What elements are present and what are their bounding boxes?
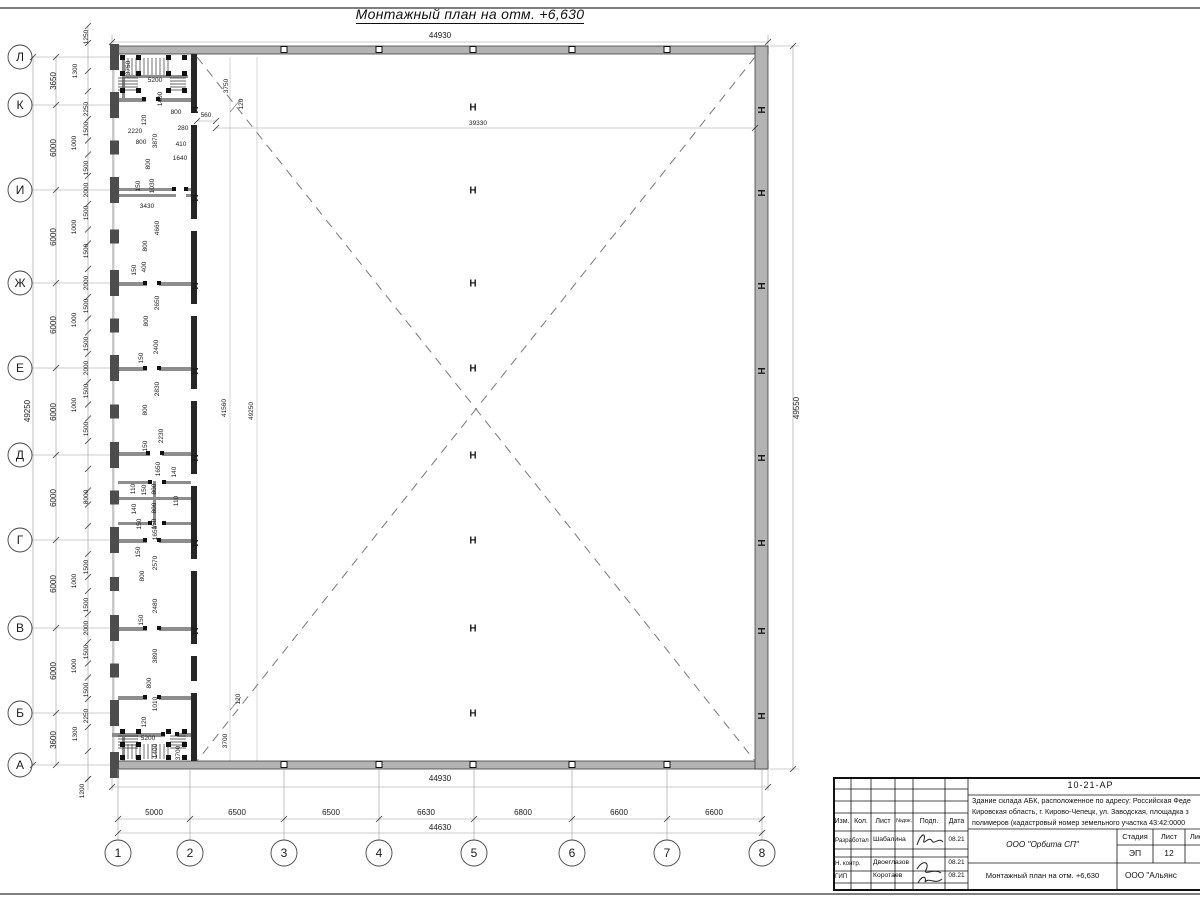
door-jamb-square (146, 451, 150, 455)
dim-label: 1300 (72, 726, 79, 741)
row-axis-label: Б (16, 706, 24, 720)
door-jamb-square (143, 695, 147, 699)
dim-label: 6600 (705, 808, 723, 817)
stair-column-square (120, 755, 125, 760)
row-axis-label: Д (16, 448, 24, 462)
row-date-gip: 08.21 (945, 873, 968, 880)
stair-column-square (182, 729, 187, 734)
col-axis-label: 5 (471, 846, 478, 860)
dim-label: 49250 (23, 399, 32, 422)
row-axis-label: Ж (14, 276, 25, 290)
steel-column-symbol: H (188, 539, 199, 546)
dim-label: 6000 (49, 228, 58, 246)
stair-column-square (136, 88, 141, 93)
steel-column-symbol: H (755, 712, 766, 719)
stair-column-square (182, 742, 187, 747)
stair-column-square (120, 742, 125, 747)
col-header-ndoc: №док. (895, 819, 913, 825)
roof-bracing (197, 57, 755, 761)
dim-label: 140 (171, 466, 178, 477)
dim-label: 120 (141, 716, 148, 727)
dim-label: 1000 (71, 658, 78, 673)
steel-column-symbol: H (755, 627, 766, 634)
wall-column-square (470, 47, 476, 53)
dim-label: 1000 (71, 312, 78, 327)
dim-label: 150 (138, 352, 145, 363)
door-jamb-square (143, 626, 147, 630)
row-axis-label: А (16, 758, 24, 772)
steel-column-symbol: H (755, 454, 766, 461)
dim-label: 1500 (83, 559, 90, 574)
dim-label: 1200 (79, 783, 86, 798)
dim-label: 110 (130, 483, 137, 494)
steel-column-symbol: H (469, 103, 476, 114)
dim-label: 800 (151, 502, 158, 513)
sheets-value: 1 (1185, 849, 1200, 858)
building-walls (112, 46, 768, 769)
wall-column-square (376, 762, 382, 768)
steel-column-symbol: H (755, 189, 766, 196)
dim-label: 3750 (223, 78, 230, 93)
dim-label: 3750 (125, 60, 132, 75)
dim-label: 5200 (141, 735, 156, 742)
stair-column-square (182, 755, 187, 760)
dim-label: 280 (178, 125, 189, 132)
door-jamb-square (172, 187, 176, 191)
steel-column-symbol: H (755, 367, 766, 374)
stair-column-square (136, 55, 141, 60)
steel-column-symbol: H (188, 106, 199, 113)
steel-column-symbol: H (469, 186, 476, 197)
dim-label: 2570 (152, 555, 159, 570)
col-header-list: Лист (871, 818, 895, 825)
dim-label: 1500 (83, 644, 90, 659)
dim-label: 150 (131, 264, 138, 275)
stair-column-square (166, 88, 171, 93)
wall-column-square (569, 762, 575, 768)
dim-label: 2250 (83, 708, 90, 723)
door-jamb-square (143, 366, 147, 370)
dim-label: 2650 (154, 295, 161, 310)
dim-label: 560 (201, 112, 212, 119)
dim-label: 2220 (128, 128, 143, 135)
door-jamb-square (142, 97, 146, 101)
door-jamb-square (156, 97, 160, 101)
dim-label: 49250 (248, 402, 255, 420)
dim-label: 39330 (469, 120, 487, 127)
steel-column-symbol: H (188, 194, 199, 201)
dim-label: 6000 (49, 316, 58, 334)
wall-column-square (376, 47, 382, 53)
dim-label: 2250 (83, 101, 90, 116)
dim-label: 400 (141, 261, 148, 272)
col-header-podp: Подп. (913, 818, 945, 825)
dim-label: 800 (145, 158, 152, 169)
dim-label: 150 (138, 614, 145, 625)
dim-label: 1500 (83, 383, 90, 398)
stage-header: Стадия (1117, 833, 1153, 841)
dim-label: 1500 (83, 298, 90, 313)
dim-label: 2400 (153, 339, 160, 354)
steel-column-symbol: H (469, 364, 476, 375)
dim-label: 6000 (49, 662, 58, 680)
sheets-header: Листов (1185, 833, 1200, 841)
dim-label: 2230 (158, 428, 165, 443)
dim-label: 4660 (154, 220, 161, 235)
stair-column-square (182, 88, 187, 93)
dim-label: 6500 (228, 808, 246, 817)
door-jamb-square (162, 480, 166, 484)
dim-label: 150 (136, 518, 143, 529)
dim-label: 1500 (83, 205, 90, 220)
dim-label: 5000 (145, 808, 163, 817)
dim-label: 1300 (72, 63, 79, 78)
org-name: ООО "Орбита СП" (968, 841, 1117, 849)
steel-column-symbol: H (469, 624, 476, 635)
row-role-gip: ГИП (835, 874, 847, 880)
row-axis-label: И (16, 183, 25, 197)
col-header-data: Дата (945, 818, 968, 825)
wall-column-square (470, 762, 476, 768)
project-description-line3: полимеров (кадастровый номер земельного … (972, 819, 1185, 826)
stair-column-square (166, 755, 171, 760)
col-axis-label: 1 (115, 846, 122, 860)
dim-label: 3890 (152, 648, 159, 663)
col-axis-label: 7 (664, 846, 671, 860)
dim-label: 49550 (792, 396, 801, 419)
steel-column-symbol: H (188, 282, 199, 289)
dim-label: 1500 (83, 336, 90, 351)
dim-label: 3430 (140, 203, 155, 210)
steel-column-symbol: H (469, 451, 476, 462)
dim-label: 800 (143, 315, 150, 326)
dim-label: 1500 (83, 421, 90, 436)
stair-column-square (120, 88, 125, 93)
dim-label: 6000 (49, 139, 58, 157)
wall-column-square (281, 762, 287, 768)
dim-label: 3870 (152, 133, 159, 148)
dim-label: 1640 (173, 155, 188, 162)
row-name-gip: Коротаев (873, 873, 902, 880)
dim-label: 3600 (49, 731, 58, 749)
steel-column-symbol: H (755, 106, 766, 113)
drawing-title: Монтажный план на отм. +6,630 (300, 6, 640, 24)
stair-column-square (136, 742, 141, 747)
stair-column-square (182, 71, 187, 76)
dim-label: 1500 (83, 682, 90, 697)
wall-column-square (569, 47, 575, 53)
dim-label: 800 (139, 570, 146, 581)
stair-column-square (120, 55, 125, 60)
dim-label: 1500 (83, 243, 90, 258)
row-name-ncontrol: Двоеглазов (873, 860, 909, 867)
dim-label: 44630 (429, 823, 452, 832)
dim-label: 1000 (71, 397, 78, 412)
wall-column-square (281, 47, 287, 53)
wall-column-square (664, 762, 670, 768)
project-description-line2: Кировская область, г. Кирово-Чепецк, ул.… (972, 808, 1189, 815)
title-block: 10-21-АР Здание склада АБК, расположенно… (833, 777, 1200, 891)
door-jamb-square (161, 732, 165, 736)
steel-column-symbol: H (469, 279, 476, 290)
dim-label: 2830 (154, 381, 161, 396)
col-axis-label: 4 (376, 846, 383, 860)
dim-label: 1000 (71, 135, 78, 150)
steel-column-symbol: H (755, 539, 766, 546)
dim-label: 1400 (152, 743, 159, 758)
stair-column-square (136, 71, 141, 76)
dim-label: 800 (146, 677, 153, 688)
blueprint-page: 4493039330560375012041560492501203700495… (0, 0, 1200, 900)
sheet-header: Лист (1153, 833, 1185, 841)
col-header-izm: Изм. (833, 818, 851, 825)
dim-label: 110 (173, 495, 180, 506)
dim-label: 3650 (49, 72, 58, 90)
dim-label: 150 (141, 484, 148, 495)
dim-label: 150 (142, 440, 149, 451)
door-jamb-square (157, 366, 161, 370)
dim-label: 800 (136, 139, 147, 146)
door-jamb-square (157, 281, 161, 285)
dim-label: 150 (135, 546, 142, 557)
dim-label: 6500 (322, 808, 340, 817)
stair-column-square (166, 729, 171, 734)
dim-label: 6630 (417, 808, 435, 817)
dim-label: 800 (171, 109, 182, 116)
dim-label: 6800 (514, 808, 532, 817)
col-axis-label: 6 (569, 846, 576, 860)
dim-label: 1030 (149, 178, 156, 193)
dim-label: 41560 (221, 399, 228, 417)
stair-column-square (166, 742, 171, 747)
dim-label: 800 (151, 483, 158, 494)
dim-label: 150 (135, 180, 142, 191)
dim-label: 1500 (83, 121, 90, 136)
dim-label: 120 (141, 114, 148, 125)
stair-column-square (136, 755, 141, 760)
dim-label: 410 (176, 141, 187, 148)
sheet-name: Монтажный план на отм. +6,630 (968, 872, 1117, 880)
dim-label: 140 (131, 503, 138, 514)
dim-label: 2480 (152, 598, 159, 613)
stair-column-square (136, 729, 141, 734)
col-axis-label: 8 (759, 846, 766, 860)
door-jamb-square (148, 480, 152, 484)
door-jamb-square (143, 538, 147, 542)
doc-number: 10-21-АР (968, 781, 1200, 790)
door-jamb-square (160, 451, 164, 455)
inner-wall (191, 54, 198, 761)
door-jamb-square (184, 187, 188, 191)
dim-label: 3700 (175, 745, 182, 760)
steel-column-symbol: H (469, 709, 476, 720)
door-jamb-square (175, 732, 179, 736)
row-axis-label: Г (17, 533, 24, 547)
dim-label: 6000 (49, 403, 58, 421)
floor-plan-drawing: 4493039330560375012041560492501203700495… (0, 0, 1200, 900)
stair-column-square (120, 71, 125, 76)
steel-column-symbol: H (755, 282, 766, 289)
steel-column-symbol: H (469, 536, 476, 547)
sheet-value: 12 (1153, 849, 1185, 858)
signature (917, 835, 943, 883)
dim-label: 120 (235, 693, 242, 704)
dim-label: 6600 (610, 808, 628, 817)
dim-label: 5200 (148, 77, 163, 84)
steel-column-symbol: H (188, 367, 199, 374)
dim-label: 1500 (83, 597, 90, 612)
staircase-top (118, 58, 186, 90)
row-axis-label: К (17, 98, 24, 112)
col-axis-label: 2 (187, 846, 194, 860)
project-description-line1: Здание склада АБК, расположенное по адре… (972, 797, 1191, 804)
row-axis-label: В (16, 621, 24, 635)
door-jamb-square (143, 281, 147, 285)
dim-label: 1650 (155, 461, 162, 476)
dim-label: 6000 (49, 575, 58, 593)
dim-label: 800 (142, 404, 149, 415)
dim-label: 1000 (71, 573, 78, 588)
stair-column-square (166, 71, 171, 76)
row-name-developer: Шабалина (873, 837, 906, 844)
org2-name: ООО "Альянс (1125, 872, 1177, 880)
row-date-developer: 08.21 (945, 837, 968, 844)
dim-label: 1000 (71, 219, 78, 234)
stair-column-square (120, 729, 125, 734)
row-date-ncontrol: 08.21 (945, 860, 968, 867)
door-jamb-square (157, 695, 161, 699)
stair-column-square (182, 55, 187, 60)
row-role-developer: Разработал (835, 838, 869, 844)
row-axis-label: Л (16, 50, 24, 64)
door-jamb-square (157, 626, 161, 630)
dim-label: 3700 (222, 733, 229, 748)
col-axis-label: 3 (281, 846, 288, 860)
steel-column-symbol: H (188, 454, 199, 461)
dim-label: 800 (142, 240, 149, 251)
row-axis-label: Е (16, 361, 24, 375)
dim-label: 1500 (83, 160, 90, 175)
door-jamb-square (162, 521, 166, 525)
door-jamb-square (157, 538, 161, 542)
stair-column-square (166, 55, 171, 60)
dim-label: 6000 (49, 489, 58, 507)
drawing-title-text: Монтажный план на отм. +6,630 (356, 6, 585, 24)
col-header-kol: Кол. (851, 818, 871, 825)
wall-column-square (664, 47, 670, 53)
row-role-ncontrol: Н. контр. (835, 861, 861, 867)
door-jamb-square (148, 521, 152, 525)
dim-label: 44930 (429, 31, 452, 40)
dim-label: 120 (238, 98, 245, 109)
steel-column-symbol: H (188, 627, 199, 634)
dim-label: 44930 (429, 774, 452, 783)
stage-value: ЭП (1117, 849, 1153, 858)
